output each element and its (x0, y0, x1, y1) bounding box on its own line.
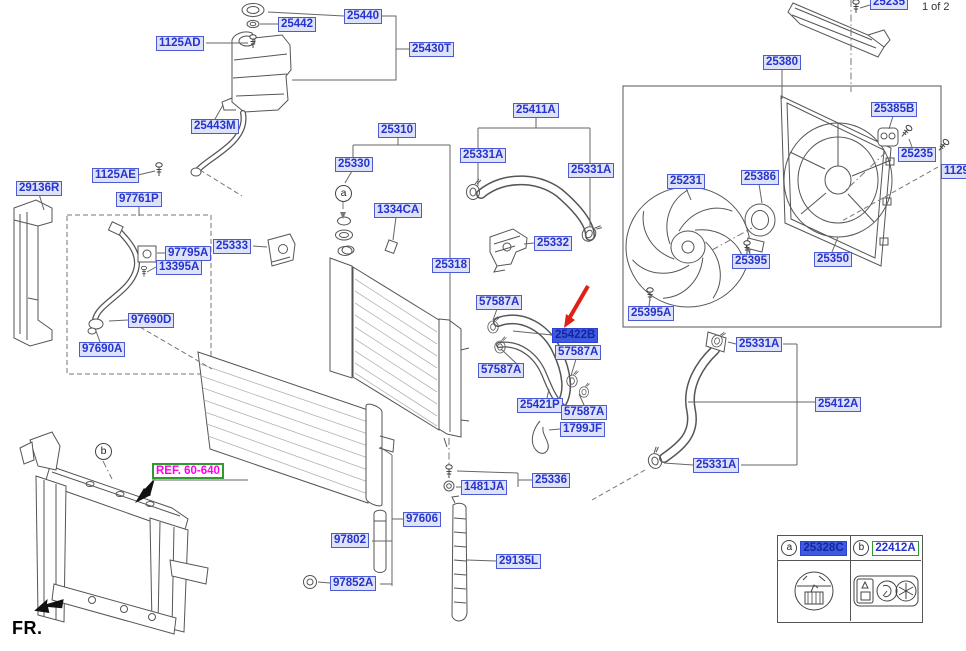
callout-marker-a: a (335, 185, 352, 202)
part-label-1129[interactable]: 1129 (941, 164, 966, 179)
part-label-1799JF[interactable]: 1799JF (560, 422, 605, 437)
legend-icon-cell-a (778, 561, 851, 621)
part-label-25332[interactable]: 25332 (534, 236, 572, 251)
part-label-97690D[interactable]: 97690D (128, 313, 174, 328)
part-label-25422B[interactable]: 25422B (552, 328, 598, 343)
legend-marker-a: a (781, 540, 797, 556)
part-label-57587A[interactable]: 57587A (555, 345, 601, 360)
parts-diagram-canvas: 1125AD254422544025430T25443M2531029136R1… (0, 0, 966, 651)
front-direction-label: FR. (12, 618, 43, 638)
part-label-97606[interactable]: 97606 (403, 512, 441, 527)
part-label-29136R[interactable]: 29136R (16, 181, 62, 196)
part-label-1334CA[interactable]: 1334CA (374, 203, 422, 218)
part-label-97761P[interactable]: 97761P (116, 192, 162, 207)
part-label-57587A[interactable]: 57587A (476, 295, 522, 310)
part-label-25331A[interactable]: 25331A (568, 163, 614, 178)
part-label-22412A[interactable]: 22412A (872, 541, 918, 556)
part-label-25442[interactable]: 25442 (278, 17, 316, 32)
part-label-25395A[interactable]: 25395A (628, 306, 674, 321)
front-direction-arrow-icon (32, 596, 66, 618)
part-label-13395A[interactable]: 13395A (156, 260, 202, 275)
part-label-25421P[interactable]: 25421P (517, 398, 563, 413)
part-label-25385B[interactable]: 25385B (871, 102, 917, 117)
sheet-indicator: 1 of 2 (922, 1, 964, 13)
front-direction-block: FR. (12, 596, 66, 639)
part-label-97852A[interactable]: 97852A (330, 576, 376, 591)
legend-cell-b: b 22412A (851, 536, 921, 561)
part-label-57587A[interactable]: 57587A (478, 363, 524, 378)
part-label-97802[interactable]: 97802 (331, 533, 369, 548)
part-label-25331A[interactable]: 25331A (693, 458, 739, 473)
part-label-25235[interactable]: 25235 (898, 147, 936, 162)
part-label-25430T[interactable]: 25430T (409, 42, 454, 57)
part-label-25310[interactable]: 25310 (378, 123, 416, 138)
part-label-25411A[interactable]: 25411A (513, 103, 559, 118)
part-label-25386[interactable]: 25386 (741, 170, 779, 185)
fan-warning-icon (853, 574, 919, 608)
part-label-25328C[interactable]: 25328C (800, 541, 846, 556)
part-label-1125AE[interactable]: 1125AE (92, 168, 139, 183)
part-label-97690A[interactable]: 97690A (79, 342, 125, 357)
part-label-25331A[interactable]: 25331A (460, 148, 506, 163)
part-label-29135L[interactable]: 29135L (496, 554, 541, 569)
legend-table: a 25328C b 22412A (777, 535, 923, 623)
legend-cell-a: a 25328C (778, 536, 851, 561)
part-label-25331A[interactable]: 25331A (736, 337, 782, 352)
part-label-25330[interactable]: 25330 (335, 157, 373, 172)
part-label-25412A[interactable]: 25412A (815, 397, 861, 412)
part-label-25235[interactable]: 25235 (870, 0, 908, 10)
legend-icon-cell-b (851, 561, 921, 621)
legend-marker-b: b (853, 540, 869, 556)
callout-marker-b: b (95, 443, 112, 460)
part-label-REF-60-640[interactable]: REF. 60-640 (152, 463, 224, 479)
part-label-25380[interactable]: 25380 (763, 55, 801, 70)
part-label-25333[interactable]: 25333 (213, 239, 251, 254)
part-label-25395[interactable]: 25395 (732, 254, 770, 269)
radiator-cap-warning-icon (791, 568, 837, 614)
part-label-97795A[interactable]: 97795A (165, 246, 211, 261)
part-label-25350[interactable]: 25350 (814, 252, 852, 267)
part-label-1125AD[interactable]: 1125AD (156, 36, 204, 51)
part-label-25443M[interactable]: 25443M (191, 119, 239, 134)
part-label-57587A[interactable]: 57587A (561, 405, 607, 420)
part-label-25231[interactable]: 25231 (667, 174, 705, 189)
part-label-25336[interactable]: 25336 (532, 473, 570, 488)
part-label-25318[interactable]: 25318 (432, 258, 470, 273)
part-label-1481JA[interactable]: 1481JA (461, 480, 507, 495)
part-label-25440[interactable]: 25440 (344, 9, 382, 24)
